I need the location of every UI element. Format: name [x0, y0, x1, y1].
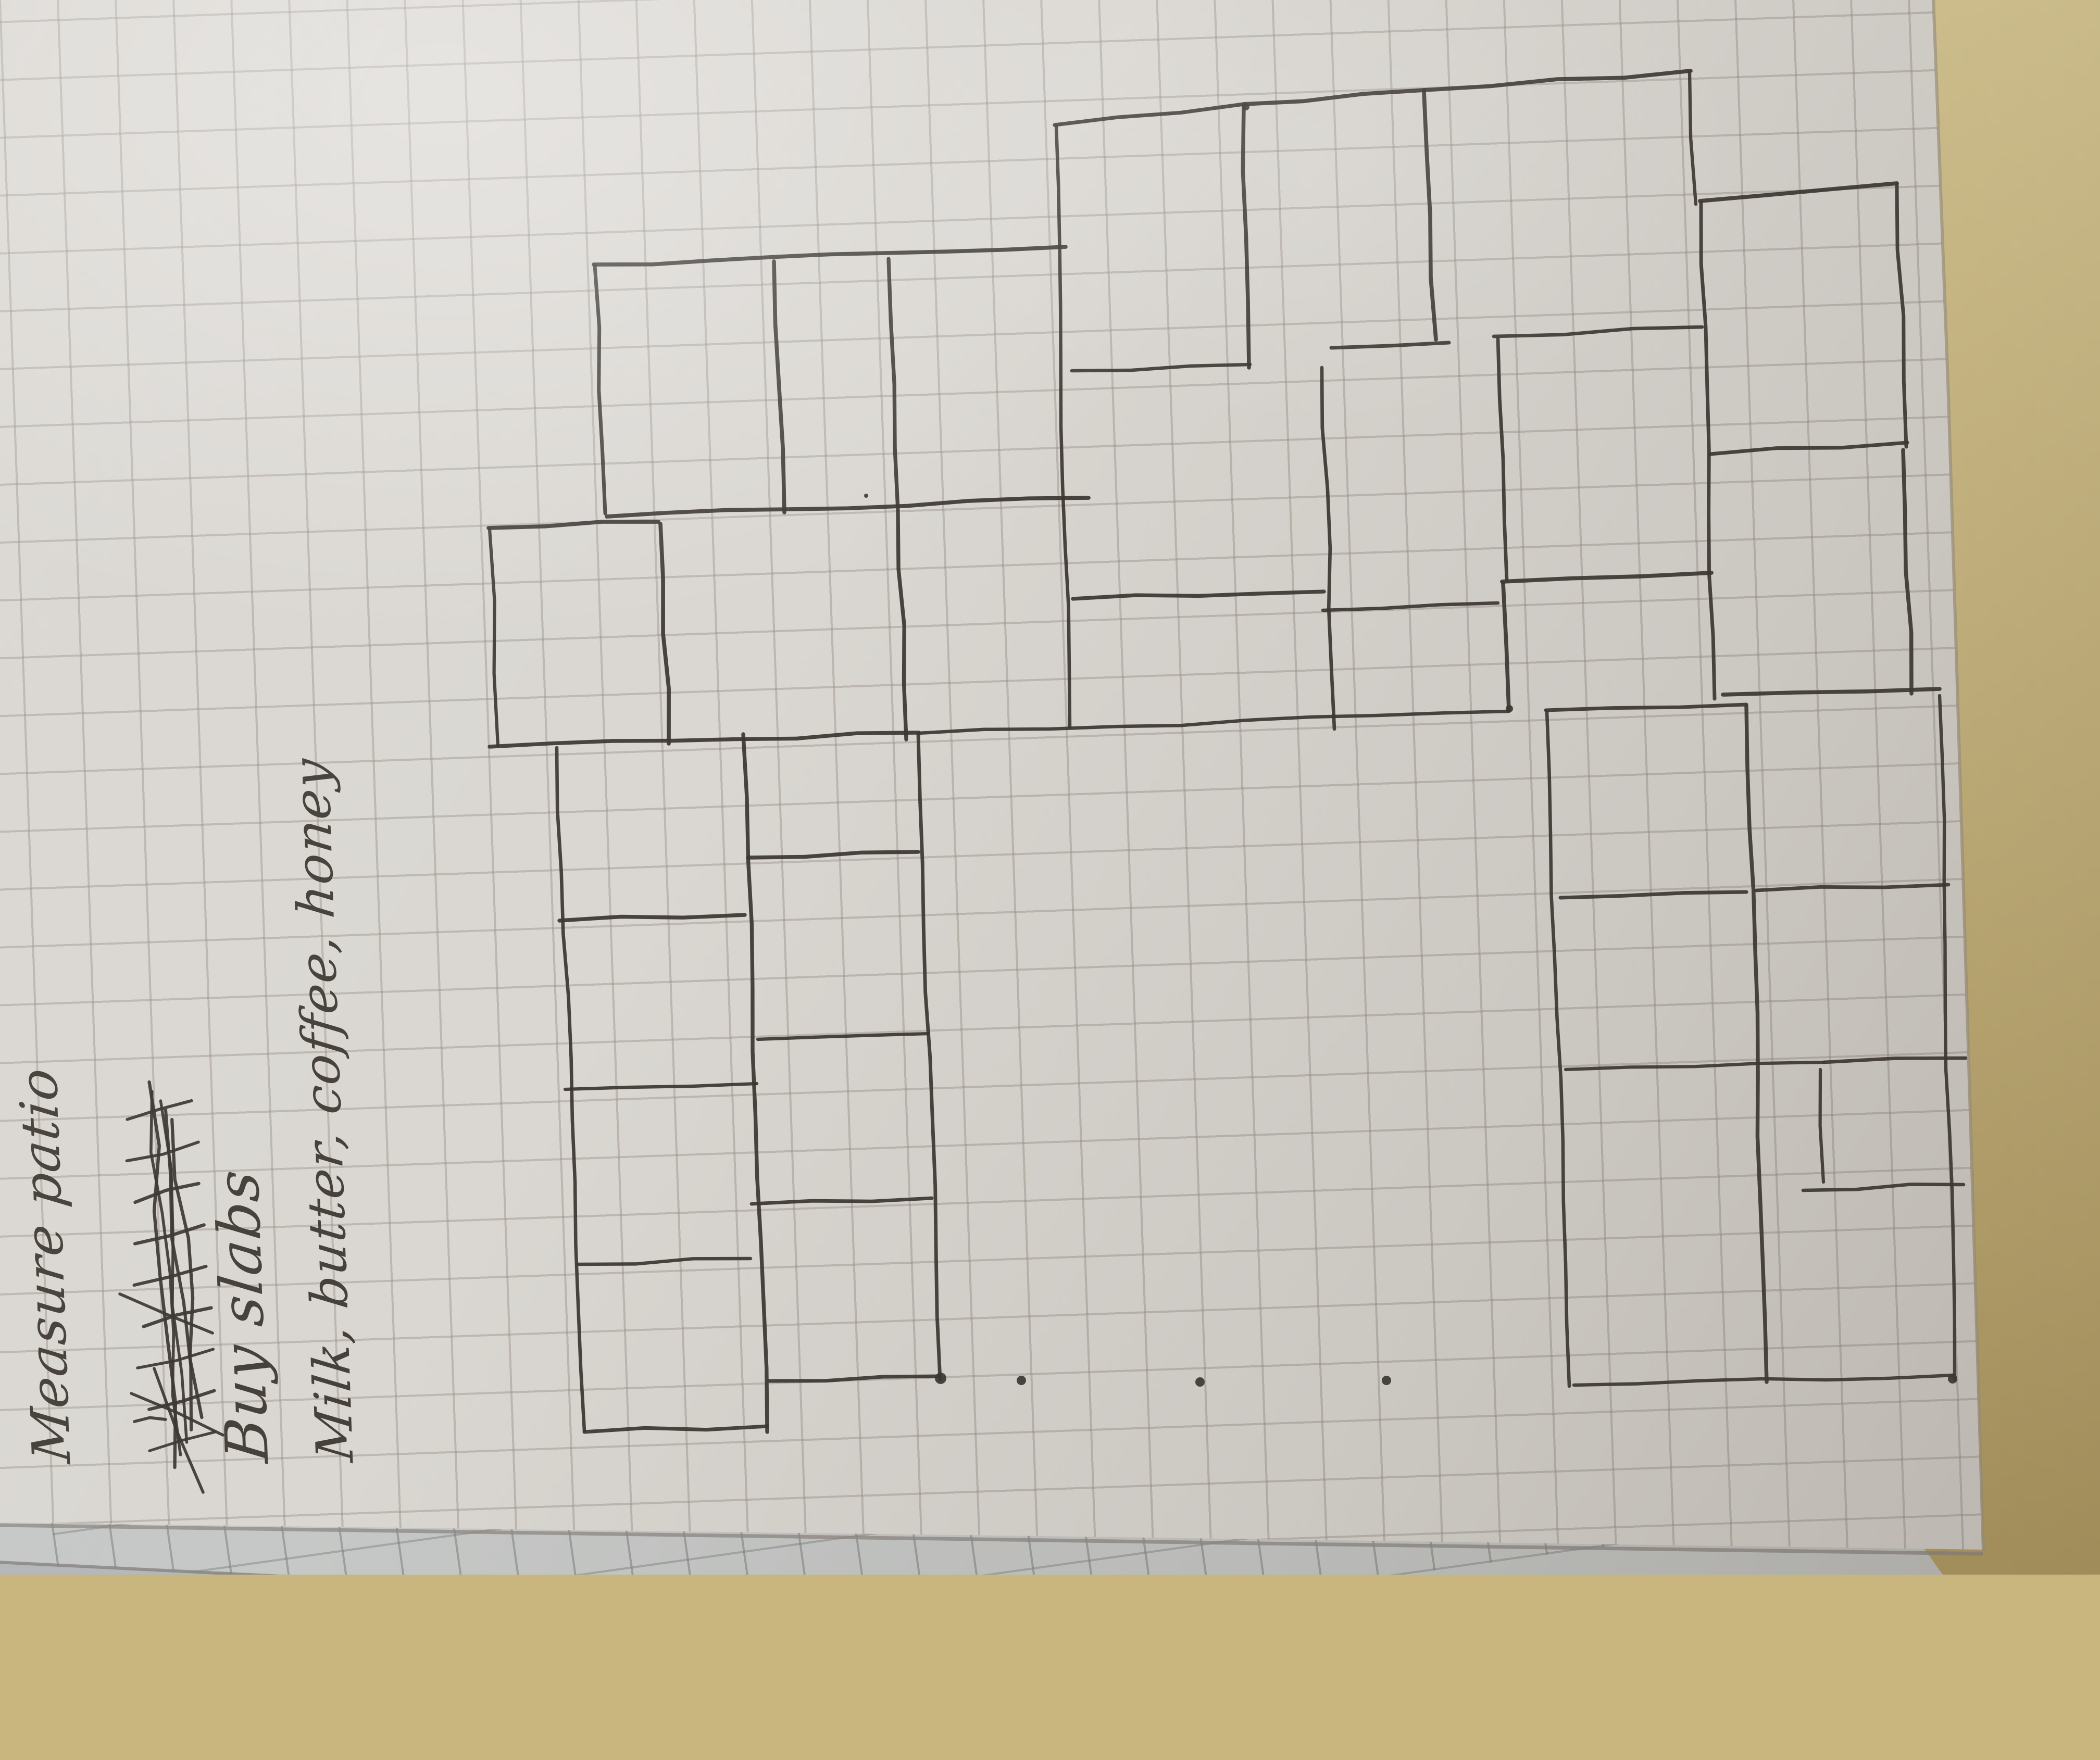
photo-scene: Measure patio Buy slabs Milk, butter, co… — [0, 0, 2100, 1575]
pen-dot — [1506, 705, 1513, 712]
note-line-measure-patio: Measure patio — [10, 1065, 81, 1465]
pen-dot — [1382, 1376, 1391, 1385]
pen-dot — [1017, 1376, 1026, 1385]
pen-dot — [935, 1373, 946, 1384]
pen-dot — [1948, 1374, 1957, 1384]
note-line-buy-slabs: Buy slabs — [206, 1166, 280, 1465]
pen-dot — [864, 494, 868, 498]
pen-dot — [1242, 103, 1249, 110]
pen-dot — [1195, 1377, 1205, 1387]
notebook-page: Measure patio Buy slabs Milk, butter, co… — [0, 0, 2100, 1575]
scribbled-out-note-line — [120, 1082, 223, 1492]
